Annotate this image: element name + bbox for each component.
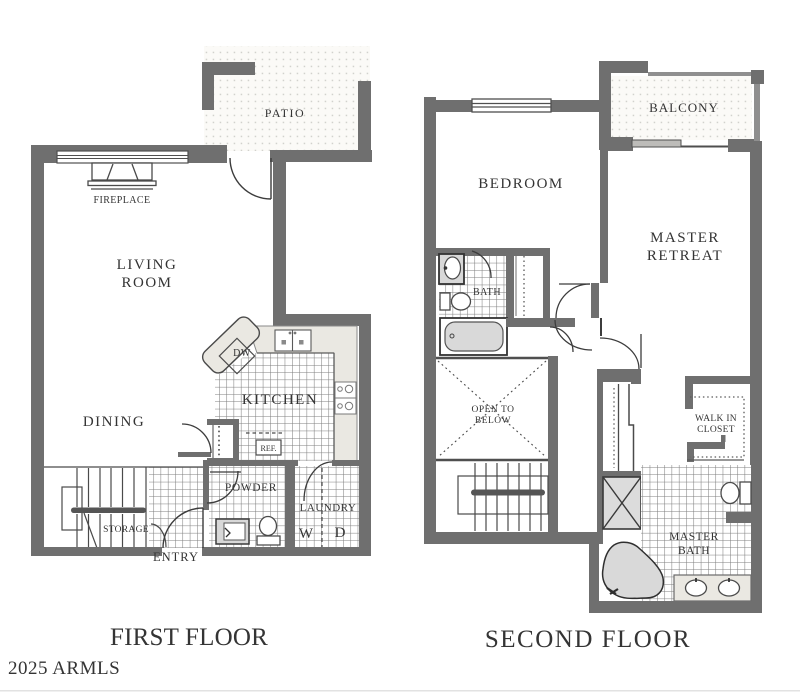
svg-text:ENTRY: ENTRY bbox=[153, 550, 199, 564]
svg-text:REF.: REF. bbox=[260, 444, 276, 453]
svg-text:PATIO: PATIO bbox=[265, 106, 305, 120]
svg-text:ROOM: ROOM bbox=[121, 275, 172, 291]
svg-text:STORAGE: STORAGE bbox=[103, 525, 149, 535]
svg-text:KITCHEN: KITCHEN bbox=[242, 392, 318, 408]
svg-text:D: D bbox=[335, 525, 346, 541]
svg-text:BATH: BATH bbox=[473, 287, 501, 298]
svg-text:FIREPLACE: FIREPLACE bbox=[94, 195, 151, 206]
svg-text:LAUNDRY: LAUNDRY bbox=[300, 502, 357, 514]
svg-text:FIRST FLOOR: FIRST FLOOR bbox=[110, 624, 268, 651]
svg-text:WALK IN: WALK IN bbox=[695, 414, 737, 424]
svg-text:OPEN TO: OPEN TO bbox=[471, 405, 514, 415]
svg-text:DINING: DINING bbox=[83, 414, 145, 430]
svg-text:MASTER: MASTER bbox=[650, 230, 720, 246]
svg-text:RETREAT: RETREAT bbox=[647, 248, 723, 264]
svg-text:BEDROOM: BEDROOM bbox=[478, 176, 564, 192]
svg-text:W: W bbox=[299, 526, 314, 542]
svg-text:BATH: BATH bbox=[678, 545, 710, 557]
svg-text:LIVING: LIVING bbox=[117, 257, 178, 273]
svg-text:BALCONY: BALCONY bbox=[649, 100, 719, 115]
svg-text:DW: DW bbox=[233, 348, 251, 359]
svg-text:POWDER: POWDER bbox=[225, 482, 277, 494]
svg-text:2025 ARMLS: 2025 ARMLS bbox=[8, 658, 120, 679]
svg-text:BELOW: BELOW bbox=[475, 416, 511, 426]
svg-text:CLOSET: CLOSET bbox=[697, 425, 735, 435]
svg-text:MASTER: MASTER bbox=[669, 531, 719, 543]
svg-text:SECOND FLOOR: SECOND FLOOR bbox=[485, 626, 691, 653]
